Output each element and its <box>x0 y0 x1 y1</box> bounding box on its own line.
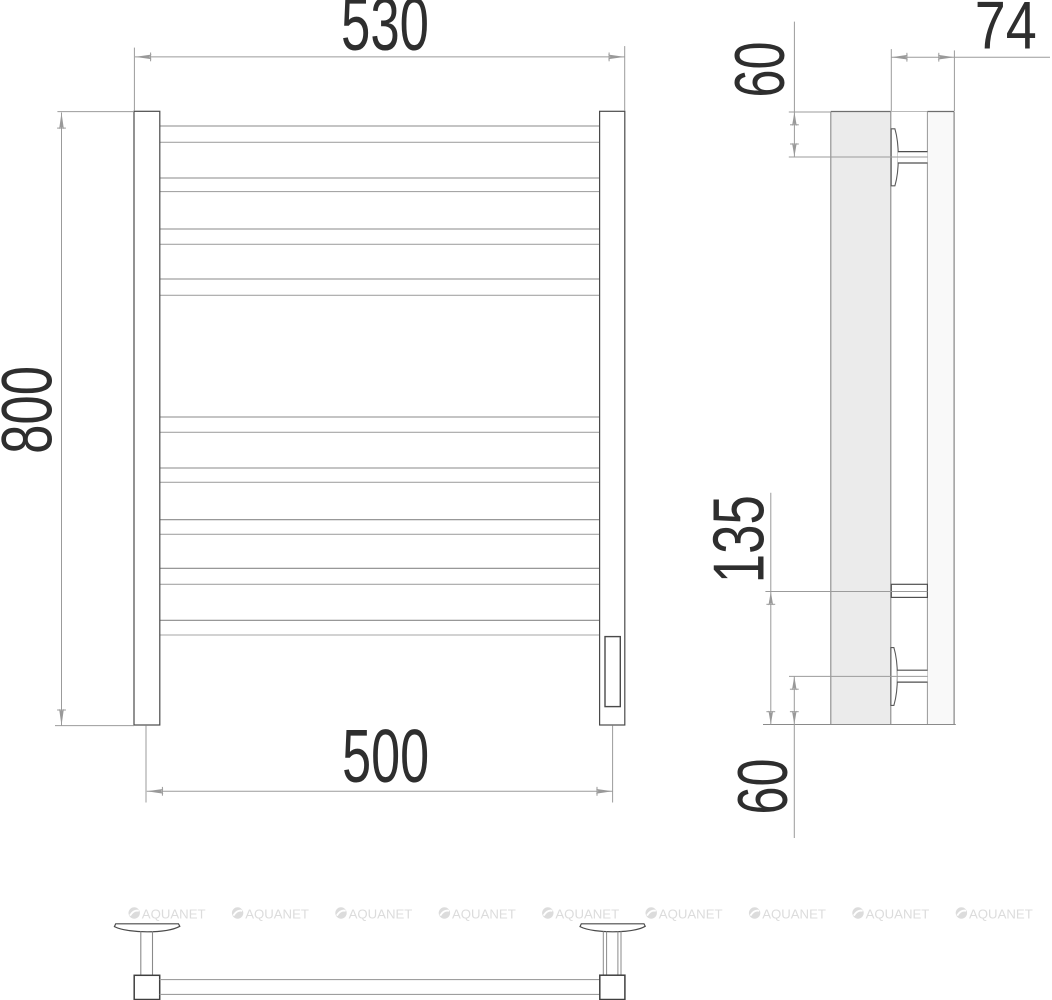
svg-text:AQUANET: AQUANET <box>245 906 309 921</box>
svg-text:AQUANET: AQUANET <box>555 906 619 921</box>
svg-text:74: 74 <box>975 0 1037 64</box>
svg-text:AQUANET: AQUANET <box>762 906 826 921</box>
svg-text:AQUANET: AQUANET <box>452 906 516 921</box>
svg-text:500: 500 <box>342 714 429 798</box>
svg-text:530: 530 <box>341 0 429 66</box>
svg-text:800: 800 <box>0 366 67 454</box>
svg-text:60: 60 <box>723 759 802 815</box>
svg-text:AQUANET: AQUANET <box>142 906 206 921</box>
svg-text:AQUANET: AQUANET <box>659 906 723 921</box>
svg-text:AQUANET: AQUANET <box>969 906 1033 921</box>
svg-text:AQUANET: AQUANET <box>349 906 413 921</box>
svg-text:AQUANET: AQUANET <box>866 906 930 921</box>
svg-text:60: 60 <box>720 42 799 98</box>
svg-text:135: 135 <box>700 495 780 583</box>
